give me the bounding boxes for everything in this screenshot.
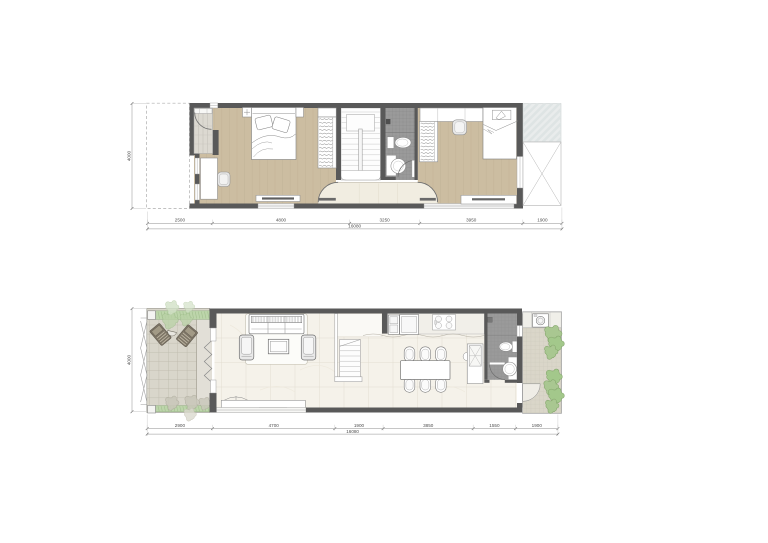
svg-text:2500: 2500 — [175, 218, 186, 223]
svg-text:4700: 4700 — [269, 423, 280, 428]
svg-text:4800: 4800 — [276, 218, 287, 223]
svg-text:16080: 16080 — [346, 429, 359, 434]
svg-text:3850: 3850 — [423, 423, 434, 428]
svg-text:3950: 3950 — [466, 218, 477, 223]
svg-text:16080: 16080 — [348, 224, 361, 229]
svg-text:1900: 1900 — [354, 423, 365, 428]
svg-text:4000: 4000 — [126, 354, 131, 365]
svg-text:1900: 1900 — [532, 423, 543, 428]
svg-text:1550: 1550 — [489, 423, 500, 428]
svg-text:1900: 1900 — [537, 218, 548, 223]
svg-text:3250: 3250 — [379, 218, 390, 223]
svg-text:2900: 2900 — [175, 423, 186, 428]
svg-text:4000: 4000 — [126, 150, 131, 161]
